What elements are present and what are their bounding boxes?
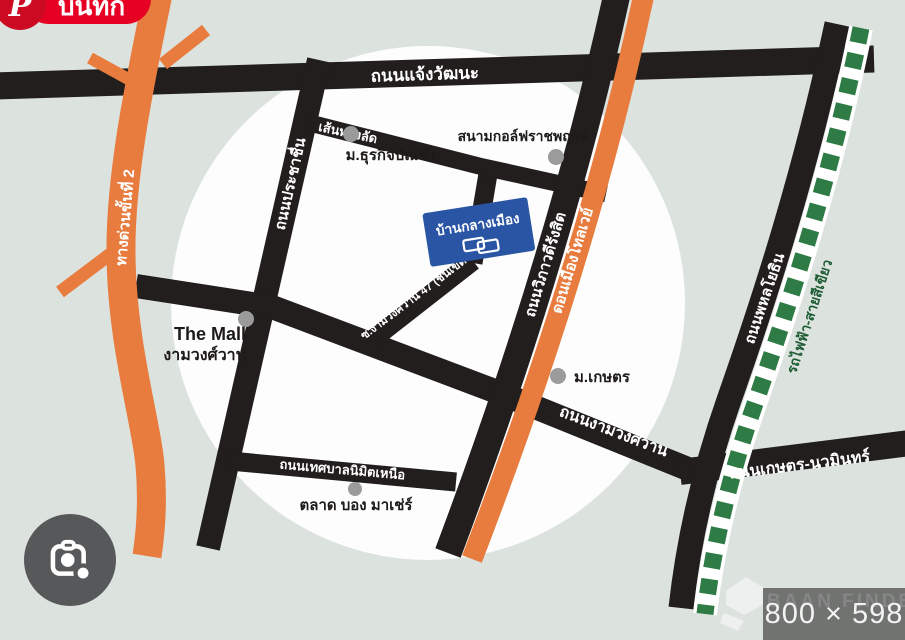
pinterest-image-viewer: ถนนแจ้งวัฒนะ ทางด่วนขั้นที่ 2 ถนนประชาชื… — [0, 0, 905, 640]
marker-dhurakij — [343, 126, 359, 142]
label-golf: สนามกอล์ฟราชพฤกษ์ — [458, 128, 589, 144]
pinterest-p-icon: P — [9, 0, 32, 24]
label-chaengwatthana: ถนนแจ้งวัฒนะ — [370, 63, 479, 85]
map-image[interactable]: ถนนแจ้งวัฒนะ ทางด่วนขั้นที่ 2 ถนนประชาชื… — [0, 0, 905, 640]
image-dimensions: 800 × 598 — [763, 598, 905, 631]
camera-lens-icon — [45, 535, 95, 585]
marker-kasetsart — [550, 368, 566, 384]
marker-golf — [548, 149, 564, 165]
label-the-mall-2: งามวงศ์วาน — [163, 345, 246, 364]
lens-button[interactable] — [24, 514, 116, 606]
image-dimensions-badge: BAAN FINDER 800 × 598 — [763, 588, 905, 640]
label-kasetsart: ม.เกษตร — [574, 369, 631, 386]
label-dhurakij: ม.ธุรกิจบัณฑิต — [346, 146, 441, 165]
label-market: ตลาด บอง มาเช่ร์ — [300, 496, 414, 514]
marker-market — [348, 482, 362, 496]
label-the-mall-1: The Mall — [174, 324, 246, 344]
